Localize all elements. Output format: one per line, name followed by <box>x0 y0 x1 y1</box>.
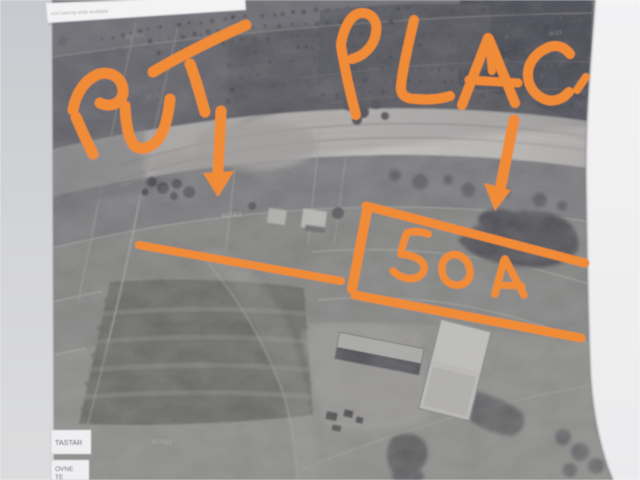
svg-text:TASTAR: TASTAR <box>55 438 82 447</box>
svg-text:TE: TE <box>55 474 64 480</box>
svg-text:OVNE: OVNE <box>55 466 74 473</box>
